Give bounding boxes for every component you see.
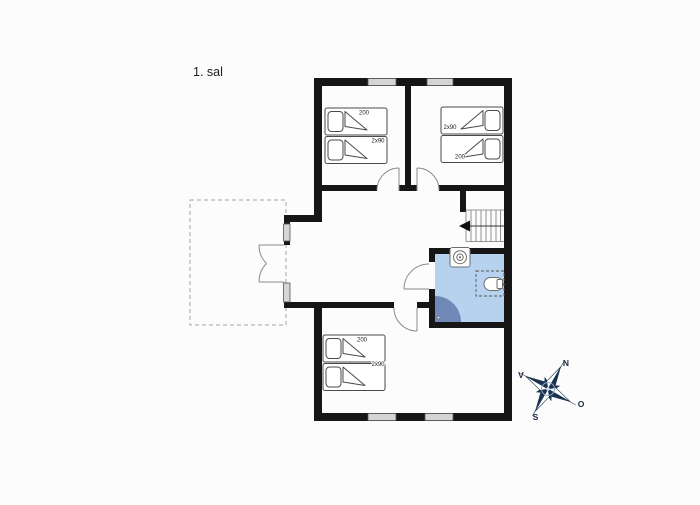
door-swing	[394, 308, 417, 331]
wall-segment	[314, 78, 512, 86]
window-icon	[284, 224, 291, 241]
floor-plan-page: 1. sal	[0, 0, 700, 500]
bed-icon	[325, 108, 387, 135]
wall-segment	[460, 191, 466, 212]
wall-segment	[284, 241, 290, 245]
stairs	[459, 210, 504, 242]
wall-segment	[405, 86, 411, 190]
balcony-outline	[190, 200, 286, 325]
wall-segment	[429, 322, 504, 328]
compass-label-west: V	[518, 370, 524, 380]
window-icon	[368, 79, 396, 86]
wall-segment	[504, 78, 512, 421]
compass-label-south: S	[533, 412, 539, 422]
window-icon	[368, 414, 396, 421]
bedroom-top-right-beds: 2x90 200	[441, 107, 503, 163]
bed-icon	[441, 136, 503, 163]
bedroom-top-left-beds: 200 2x90	[325, 108, 387, 164]
floor-title: 1. sal	[193, 65, 223, 79]
bed-width-label: 2x90	[371, 362, 385, 368]
bed-length-label: 200	[357, 338, 368, 344]
floor-drain-icon	[437, 316, 440, 319]
door-swing	[259, 264, 267, 283]
wall-segment	[417, 302, 429, 308]
wall-segment	[314, 413, 512, 421]
door-swing	[259, 245, 267, 264]
wall-segment	[399, 185, 417, 191]
stairs-direction-arrow-icon	[459, 221, 470, 232]
door-swing	[404, 264, 429, 289]
bed-length-label: 200	[455, 155, 466, 161]
washbasin-icon	[497, 280, 503, 289]
wall-segment	[322, 185, 377, 191]
bed-width-label: 2x90	[443, 125, 457, 131]
compass-star-icon	[505, 346, 591, 432]
window-icon	[284, 283, 291, 302]
compass-label-north: N	[563, 358, 569, 368]
wall-segment	[284, 215, 322, 222]
wall-segment	[314, 78, 322, 222]
compass-rose: N O S V	[505, 346, 591, 432]
wall-segment	[314, 302, 322, 421]
door-swing	[377, 168, 399, 190]
bedroom-bottom-beds: 200 2x90	[323, 335, 385, 391]
compass-label-east: O	[578, 399, 585, 409]
wall-segment	[322, 302, 394, 308]
window-icon	[425, 414, 453, 421]
floor-plan-canvas: 1. sal	[0, 0, 700, 500]
bed-icon	[323, 335, 385, 362]
window-icon	[427, 79, 453, 86]
wall-segment	[439, 185, 504, 191]
bed-length-label: 200	[359, 111, 370, 117]
toilet-icon	[459, 256, 461, 258]
door-swing	[417, 168, 439, 190]
bed-width-label: 2x90	[371, 139, 385, 145]
